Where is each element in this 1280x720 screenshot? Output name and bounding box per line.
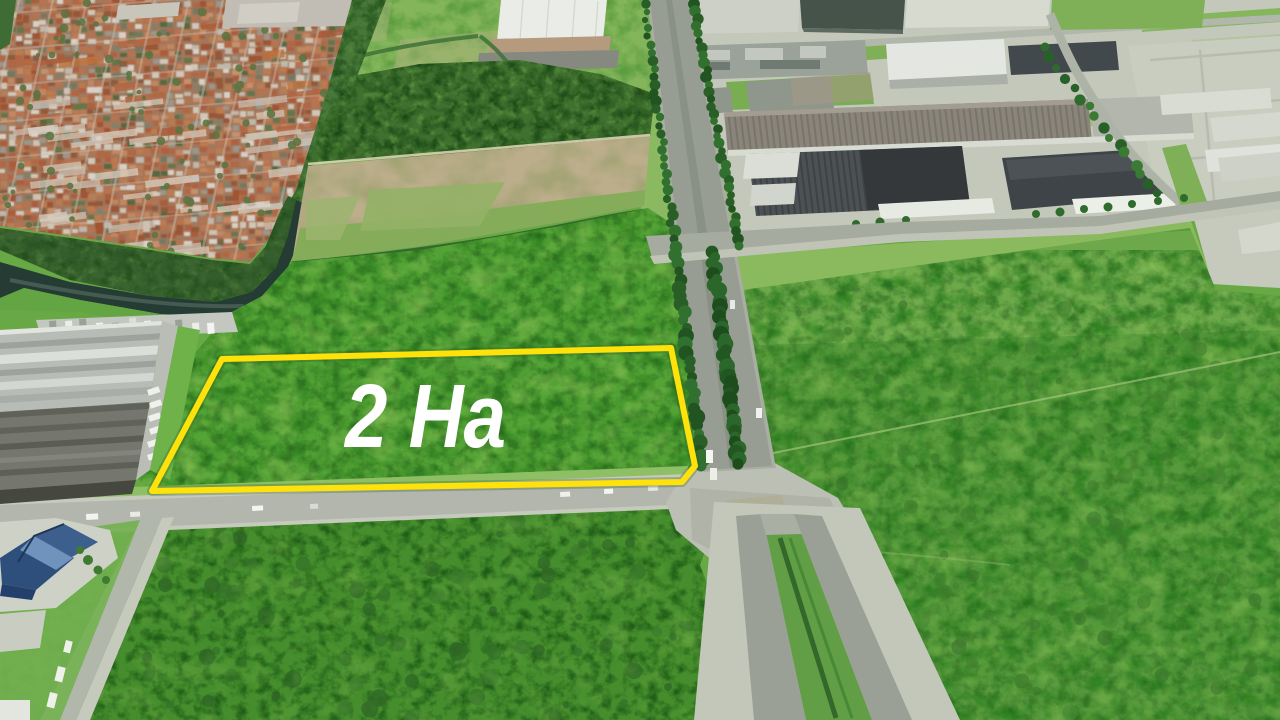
svg-text:2 Ha: 2 Ha xyxy=(343,367,506,467)
